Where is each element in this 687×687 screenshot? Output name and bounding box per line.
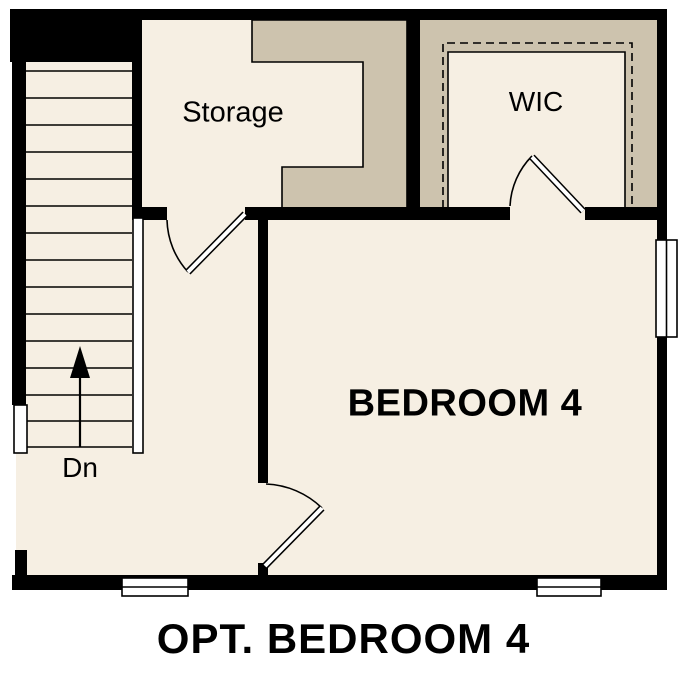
floor-plan: Storage WIC BEDROOM 4 Dn OPT. BEDROOM 4 <box>0 0 687 687</box>
wic-inner-floor <box>448 52 625 208</box>
wall-stairs-right <box>132 20 142 220</box>
wall-left-lower <box>15 550 27 576</box>
wall-bedroom-left <box>258 220 268 483</box>
wall-top-left-block <box>10 9 142 62</box>
bedroom-room-label: BEDROOM 4 <box>348 383 583 426</box>
wall-wic-bottom-right <box>585 207 667 220</box>
stair-banister <box>133 218 143 453</box>
floor-plan-drawing <box>0 0 687 687</box>
storage-room-label: Storage <box>182 97 284 130</box>
window-bottom-left <box>122 578 188 596</box>
window-bottom-right <box>537 578 601 596</box>
window-left <box>14 405 27 453</box>
stairs-dn-label: Dn <box>62 452 98 484</box>
wall-storage-bottom <box>245 207 510 220</box>
wall-storage-wic-divider <box>407 9 420 220</box>
wall-left <box>12 20 26 405</box>
window-right <box>656 240 677 337</box>
wic-room-label: WIC <box>509 86 563 118</box>
plan-caption: OPT. BEDROOM 4 <box>0 615 687 663</box>
